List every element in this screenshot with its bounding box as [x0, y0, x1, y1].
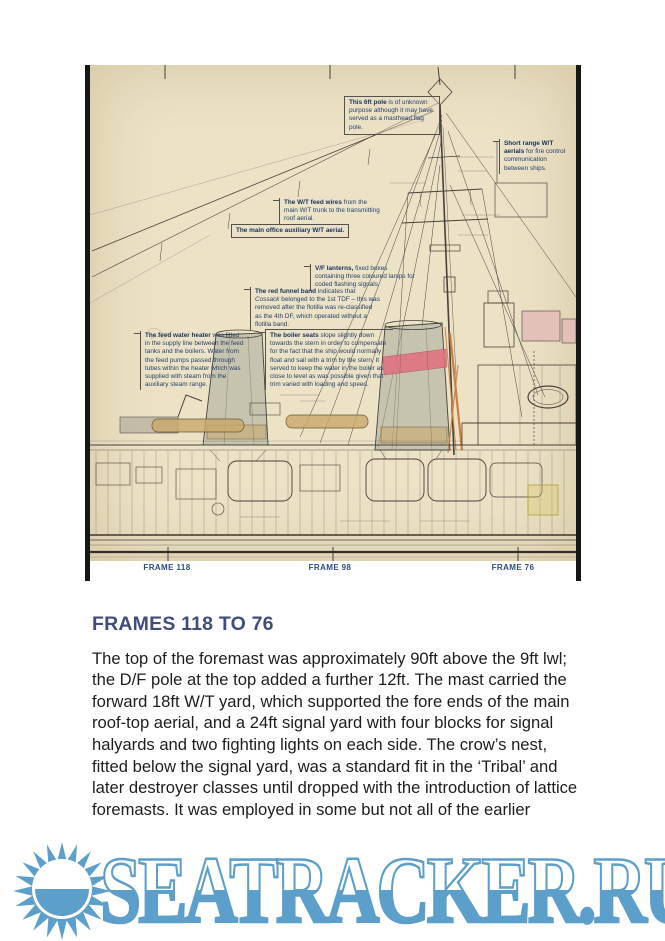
annotation-ship-name: Cossack [255, 296, 280, 303]
annotation-lead: The W/T feed wires [284, 199, 342, 206]
bridge-superstructure [478, 291, 576, 515]
annotation-lead: This 6ft pole [349, 99, 387, 106]
crows-nest [444, 277, 455, 292]
boiler-drum [366, 459, 424, 501]
boiler-drum [428, 459, 486, 501]
frame-label-98: FRAME 98 [300, 563, 360, 572]
frame-label-118: FRAME 118 [137, 563, 197, 572]
site-watermark: SEATRACKER.RU SEATRACKER.RU [100, 840, 665, 940]
annotation-text: slope slightly down towards the stern in… [270, 332, 386, 388]
annotation-lead: The feed water heater [145, 332, 211, 339]
annotation-feed-water-heater: The feed water heater was fitted in the … [140, 331, 244, 390]
drawing-right-border [576, 65, 581, 581]
annotation-short-range-aerials: Short range W/T aerials for fire control… [499, 139, 566, 174]
section-heading: FRAMES 118 TO 76 [92, 613, 274, 636]
annotation-6ft-pole: This 6ft pole is of unknown purpose alth… [344, 96, 440, 135]
annotation-lead: The boiler seats [270, 332, 319, 339]
machinery [96, 450, 542, 515]
ships-boat [152, 419, 244, 432]
annotation-lead: V/F lanterns, [315, 265, 353, 272]
annotation-wt-feed-wires: The W/T feed wires from the main W/T tru… [279, 198, 382, 225]
book-page: This 6ft pole is of unknown purpose alth… [0, 0, 665, 941]
frame-label-76: FRAME 76 [483, 563, 543, 572]
annotation-boiler-seats: The boiler seats slope slightly down tow… [265, 329, 393, 390]
annotation-text: was fitted in the supply line between th… [145, 332, 243, 388]
ships-boat [286, 415, 368, 428]
annotation-lead: The main office auxiliary W/T aerial. [236, 227, 344, 234]
hull [90, 423, 576, 557]
boiler-drum [228, 461, 292, 501]
annotation-lead: The red funnel band [255, 288, 316, 295]
section-body: The top of the foremast was approximatel… [92, 648, 581, 821]
davit [178, 395, 202, 417]
annotation-text: indicates that [316, 288, 355, 295]
annotation-red-funnel-band: The red funnel band indicates that Cossa… [250, 287, 380, 330]
annotation-auxiliary-wt-aerial: The main office auxiliary W/T aerial. [231, 224, 349, 238]
